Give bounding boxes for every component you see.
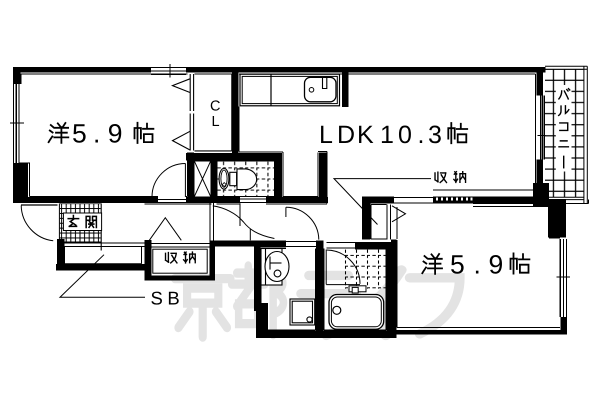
svg-text:0: 0 (398, 121, 412, 149)
svg-text:L: L (319, 121, 333, 149)
svg-text:D: D (337, 121, 355, 149)
svg-text:.: . (93, 118, 100, 148)
svg-text:.: . (418, 121, 425, 149)
svg-text:SB: SB (151, 288, 185, 309)
svg-text:C: C (210, 99, 220, 115)
svg-text:5: 5 (72, 118, 87, 148)
svg-text:3: 3 (428, 121, 442, 149)
svg-text:1: 1 (380, 121, 394, 149)
svg-text:5: 5 (450, 250, 465, 280)
svg-text:K: K (357, 121, 374, 149)
svg-text:.: . (474, 250, 481, 280)
svg-text:L: L (212, 114, 220, 130)
svg-text:9: 9 (108, 118, 123, 148)
svg-text:9: 9 (489, 250, 504, 280)
